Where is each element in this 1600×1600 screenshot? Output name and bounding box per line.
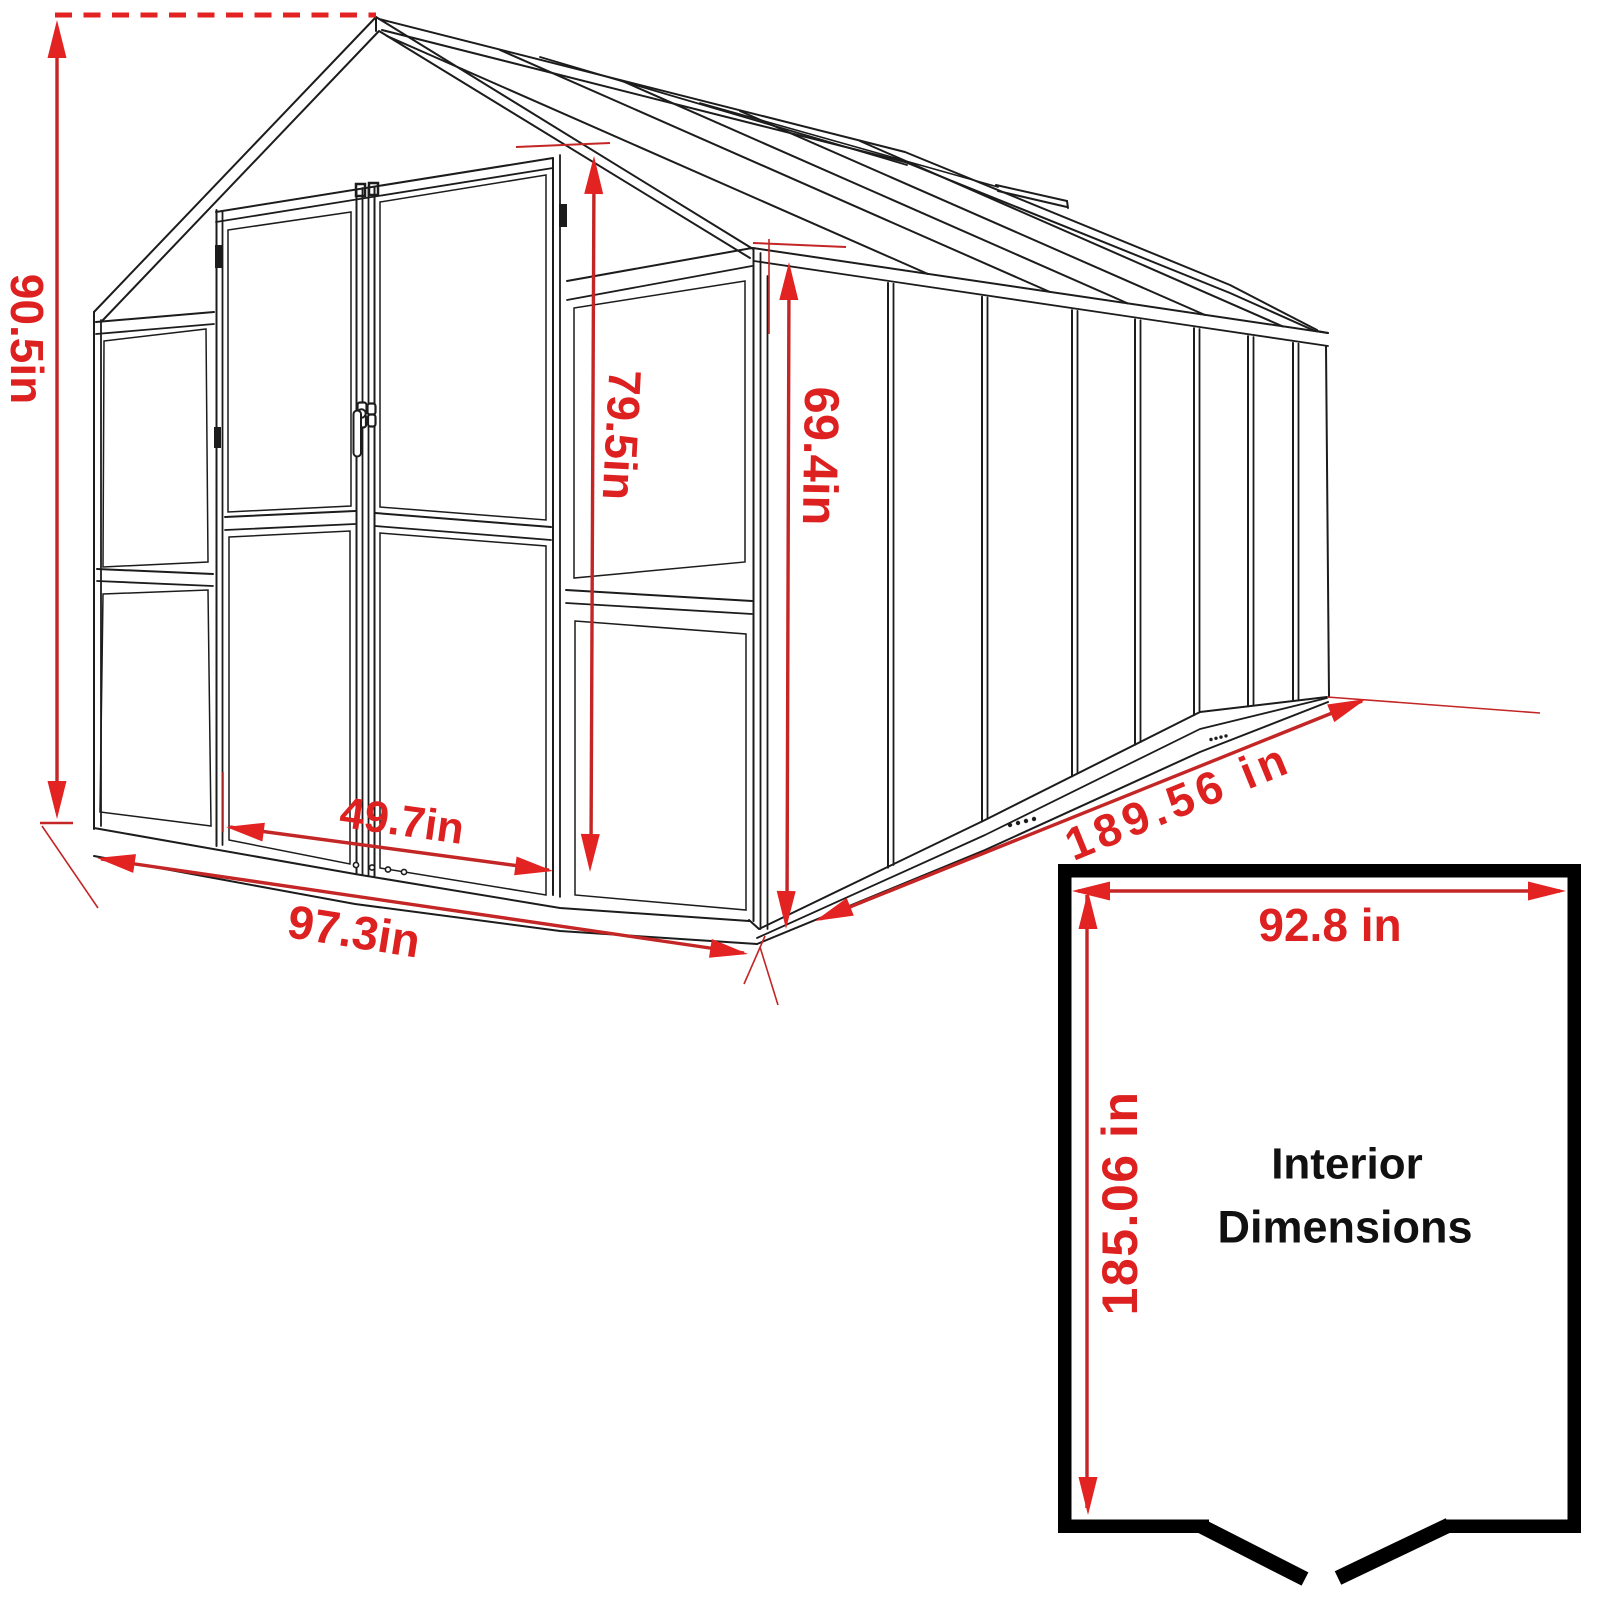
svg-text:Interior: Interior xyxy=(1271,1140,1423,1189)
svg-text:Dimensions: Dimensions xyxy=(1217,1202,1472,1253)
svg-text:92.8 in: 92.8 in xyxy=(1258,899,1401,951)
svg-text:79.5in: 79.5in xyxy=(593,369,652,502)
svg-text:69.4in: 69.4in xyxy=(792,386,848,526)
svg-text:90.5in: 90.5in xyxy=(1,274,53,404)
svg-text:185.06 in: 185.06 in xyxy=(1092,1091,1148,1316)
